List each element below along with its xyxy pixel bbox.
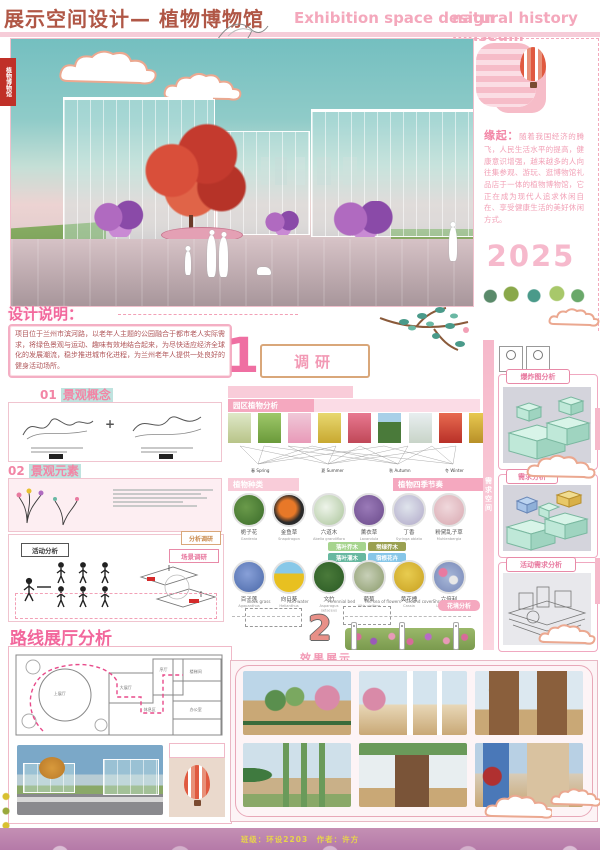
plant-photo-tile [318, 413, 341, 443]
legend-pill: 落叶乔木 [328, 542, 366, 551]
floor-plan-drawing [13, 651, 225, 739]
plant-photo-tile [228, 413, 251, 443]
mini-tag [159, 454, 173, 459]
plant-photo-circle [432, 560, 466, 594]
red-maple-tree [139, 121, 249, 231]
branch-decoration [376, 300, 472, 392]
plant-photo-tile [439, 413, 462, 443]
origin-panel: 缘起：随着我国经济的腾飞，人民生活水平的提高，健康意识增强，越来越多的人向往集参… [476, 38, 599, 331]
species-bar: 植物种类 [228, 478, 299, 491]
plant-item: 金鱼草Snapdragon [269, 493, 309, 541]
season-network: 春 Spring 夏 Summer 秋 Autumn 冬 Winter [228, 444, 480, 478]
cloud-outline-icon [56, 45, 166, 89]
footer-credit: 班级：环设2203 作者：许方 [241, 834, 359, 845]
yellow-tree [39, 757, 65, 779]
cloud-outline-icon [536, 622, 598, 648]
floor-plan: 上展厅 大展厅 序厅 休息区 楼梯间 办公室 [13, 651, 225, 739]
person-silhouette [219, 237, 228, 277]
dashed-inner-frame [15, 593, 217, 619]
season-node: 春 Spring [251, 468, 269, 473]
massing-diagram [503, 485, 591, 551]
season-node: 秋 Autumn [389, 468, 410, 473]
flower-bed-illustration [345, 628, 475, 650]
concept-sketch-right [127, 409, 207, 443]
child-silhouette [185, 251, 191, 275]
header-divider [0, 32, 600, 37]
origin-body: 随着我国经济的腾飞，人民生活水平的提高，健康意识增强，越来越多的人向往集参观、游… [484, 132, 584, 224]
elements-text-bars [113, 487, 213, 509]
plant-photo-tile [348, 413, 371, 443]
activity-scene-box: 分析调研 活动分析 场景调研 [8, 534, 224, 622]
plant-photo-circle [312, 493, 346, 527]
room-label: 序厅 [159, 667, 167, 672]
plant-photo-circle [432, 493, 466, 527]
right-vertical-tag: 需求空间 [483, 340, 494, 650]
hot-air-balloon-icon [520, 47, 546, 81]
plant-item: 栀子花Gardenia [229, 493, 269, 541]
plant-photo-circle [232, 560, 266, 594]
interior-render-thumb [359, 743, 467, 807]
exterior-render [17, 745, 163, 815]
cloud-outline-icon [524, 452, 598, 482]
plant-photo-tile [378, 413, 401, 443]
flowerbed-label: Ground cover [406, 600, 433, 605]
plant-item: 薰衣草Lavandula [349, 493, 389, 541]
interior-render-thumb [475, 671, 583, 735]
mini-tag [49, 454, 63, 459]
pavilion-roof-edge [311, 109, 473, 112]
cloud-outline-icon [548, 786, 600, 810]
plant-photo-circle [272, 493, 306, 527]
route-panel: 上展厅 大展厅 序厅 休息区 楼梯间 办公室 [8, 646, 232, 824]
footer-bar: 班级：环设2203 作者：许方 [0, 828, 600, 850]
hero-render [10, 38, 474, 307]
person-silhouette [207, 235, 216, 277]
section-01-title: 景观概念 [61, 388, 113, 402]
origin-label: 缘起： [484, 129, 519, 142]
hot-air-balloon-icon [184, 765, 210, 799]
interior-render-thumb [243, 671, 351, 735]
season-node: 冬 Winter [445, 468, 464, 473]
plant-photo-tile [409, 413, 432, 443]
room-label: 休息区 [144, 707, 156, 712]
year-2025: 2025 [476, 239, 586, 273]
section-01-number: 01 [40, 388, 57, 402]
plants-top-bar [228, 386, 353, 398]
plant-photo-circle [392, 493, 426, 527]
pavement [11, 239, 473, 306]
plants-analysis-bar: 园区植物分析 [228, 399, 317, 412]
concept-sketch-box: + [8, 402, 222, 462]
design-note-heading: 设计说明： [8, 303, 83, 324]
dog-silhouette [257, 267, 271, 275]
cloud-outline-icon [546, 306, 600, 330]
plant-item: 六道木Abelia grandiflora [309, 493, 349, 541]
flowerbed-dashed-box [343, 606, 391, 625]
plus-sign: + [105, 417, 115, 431]
purple-shrub [329, 201, 401, 237]
room-label: 大展厅 [120, 685, 132, 690]
person-silhouette [449, 227, 457, 261]
section-02-title: 景观元素 [29, 464, 81, 478]
plant-photo-circle [392, 560, 426, 594]
flowerbed-label: The sea of flowers [364, 600, 401, 605]
massing-panel [503, 485, 591, 551]
flowerbed-label: Block grass [247, 600, 270, 605]
mini-landscape-strip [482, 283, 586, 305]
exploded-analysis-pill: 爆炸图分析 [506, 369, 570, 384]
room-label: 楼梯间 [190, 669, 202, 674]
flowerbed-label: Perennial bed [328, 600, 356, 605]
plant-photo-tile [288, 413, 311, 443]
seal-stamp: 植物博物馆 [0, 58, 16, 106]
design-note-body: 项目位于兰州市滨河路，以老年人主题的公园融合于都市老人实际需求，将绿色景观与运动… [8, 324, 232, 378]
poster-board: 展示空间设计— 植物博物馆 Exhibition space design na… [0, 0, 600, 850]
season-node: 夏 Summer [321, 468, 344, 473]
plant-item: 粉黛乱子草Muhlenbergia [429, 493, 469, 541]
purple-shrub [263, 209, 303, 235]
section-1-label: 调研 [260, 344, 370, 378]
demand-analysis-box: 需求分析 [498, 474, 598, 558]
cloud-outline-icon [482, 792, 552, 822]
pavilion-roof-edge [63, 97, 213, 100]
plant-photo-circle [232, 493, 266, 527]
legend-pill: 常绿乔木 [368, 542, 406, 551]
card-strip [169, 743, 225, 758]
corner-tag: 分析调研 [181, 531, 221, 545]
interior-render-thumb [243, 743, 351, 807]
section-02-number: 02 [8, 464, 25, 478]
section-2-number: 2 [308, 612, 332, 646]
flowerbed-dashed-box [245, 608, 302, 627]
plant-photo-circle [272, 560, 306, 594]
plant-sketch [15, 483, 105, 527]
purple-shrub [91, 197, 149, 237]
interior-render-thumb [359, 671, 467, 735]
edge-strip [595, 558, 600, 604]
plants-analysis-bar-ext [314, 399, 480, 412]
activity-demand-pill: 活动需求分析 [506, 557, 576, 572]
plant-photo-tile [258, 413, 281, 443]
elements-sketch-box [8, 478, 222, 532]
section-01-heading: 01 景观概念 [40, 386, 113, 403]
garden-analysis-tag: 花境分析 [438, 600, 480, 611]
plant-photo-circle [352, 560, 386, 594]
balloon-card [169, 743, 225, 817]
activity-tag: 活动分析 [21, 543, 69, 557]
flowerbed-label: Acid water [287, 600, 308, 605]
plant-photo-circle [312, 560, 346, 594]
plant-photo-circle [352, 493, 386, 527]
edge-strip [595, 408, 600, 450]
room-label: 上展厅 [54, 691, 66, 696]
plant-item: 丁香Syringa oblata [389, 493, 429, 541]
curb [17, 797, 163, 802]
plant-photo-strip [228, 413, 480, 443]
room-label: 办公室 [190, 707, 202, 712]
concept-sketch-left [17, 409, 97, 443]
season-rhythm-bar: 植物四季节奏 [393, 478, 485, 491]
decorative-dashed-line [118, 314, 298, 315]
season-network-lines [228, 444, 480, 468]
origin-text: 缘起：随着我国经济的腾飞，人民生活水平的提高，健康意识增强，越来越多的人向往集参… [484, 127, 584, 225]
section-02-heading: 02 景观元素 [8, 462, 81, 479]
section-1-number: 1 [226, 332, 259, 380]
